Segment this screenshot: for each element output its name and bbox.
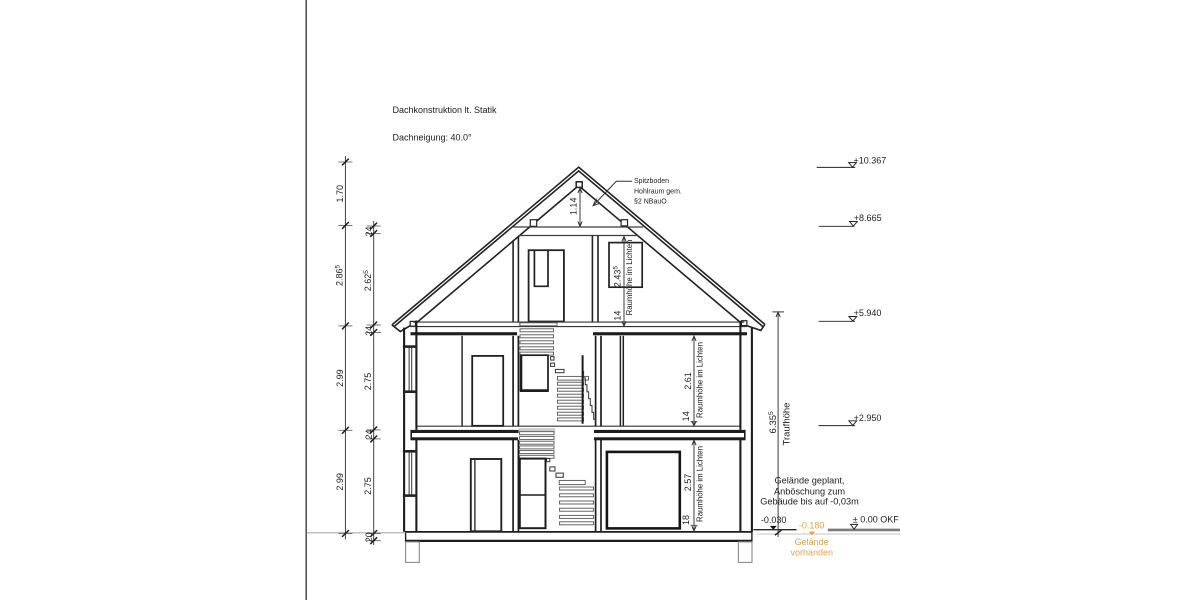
svg-text:24: 24 — [364, 429, 374, 439]
svg-text:Anböschung zum: Anböschung zum — [774, 486, 845, 496]
svg-text:-0.180: -0.180 — [799, 521, 825, 531]
svg-text:-0.030: -0.030 — [761, 515, 787, 525]
svg-text:24: 24 — [364, 226, 374, 236]
svg-text:Raumhöhe im Lichten: Raumhöhe im Lichten — [695, 446, 704, 522]
svg-text:+2.950: +2.950 — [854, 413, 882, 423]
svg-text:2.99: 2.99 — [335, 473, 345, 491]
svg-text:20: 20 — [364, 532, 374, 542]
svg-text:24: 24 — [364, 326, 374, 336]
svg-text:§2 NBauO: §2 NBauO — [634, 199, 667, 206]
svg-text:18: 18 — [681, 515, 691, 525]
svg-text:Spitzboden: Spitzboden — [634, 178, 669, 185]
svg-text:1.14: 1.14 — [568, 198, 578, 216]
svg-text:vorhanden: vorhanden — [791, 548, 834, 558]
svg-text:14: 14 — [681, 411, 691, 421]
svg-text:Dachneigung: 40.0°: Dachneigung: 40.0° — [393, 133, 473, 143]
svg-text:Raumhöhe im Lichten: Raumhöhe im Lichten — [695, 342, 704, 418]
svg-text:+5.940: +5.940 — [854, 308, 882, 318]
svg-text:2.75: 2.75 — [363, 373, 373, 391]
svg-text:2.61: 2.61 — [683, 372, 693, 390]
svg-text:Raumhöhe im Lichten: Raumhöhe im Lichten — [625, 240, 634, 316]
svg-text:Traufhöhe: Traufhöhe — [781, 403, 792, 446]
svg-text:± 0.00 OKF: ± 0.00 OKF — [853, 514, 899, 524]
svg-text:+10.367: +10.367 — [854, 155, 887, 165]
svg-text:2.75: 2.75 — [363, 477, 373, 495]
svg-text:2.99: 2.99 — [335, 369, 345, 387]
svg-text:Gebäude bis auf -0,03m: Gebäude bis auf -0,03m — [760, 496, 859, 506]
svg-text:+8.665: +8.665 — [854, 213, 882, 223]
svg-text:Gelände geplant,: Gelände geplant, — [775, 476, 845, 486]
svg-text:Hohlraum gem.: Hohlraum gem. — [634, 188, 682, 195]
svg-text:14: 14 — [612, 311, 622, 321]
svg-text:1.70: 1.70 — [335, 185, 345, 203]
svg-text:Gelände: Gelände — [795, 537, 829, 547]
svg-text:2.57: 2.57 — [683, 474, 693, 492]
svg-text:Dachkonstruktion lt. Statik: Dachkonstruktion lt. Statik — [393, 105, 498, 115]
